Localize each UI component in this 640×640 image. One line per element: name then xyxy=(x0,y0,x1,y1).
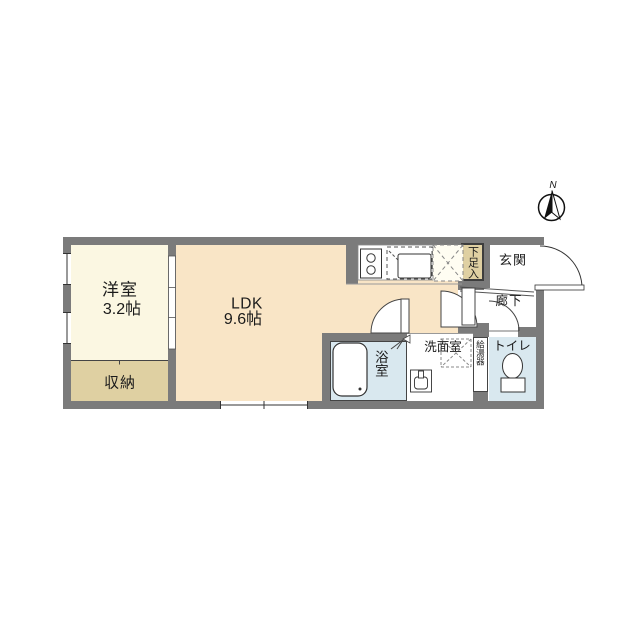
door-arc-washroom xyxy=(371,299,409,333)
window-west-lower xyxy=(63,312,71,344)
room-label-washroom: 洗面室 xyxy=(424,341,462,354)
room-label-closet: 収納 xyxy=(104,376,136,391)
front-door xyxy=(535,245,584,290)
room-size-western: 3.2帖 xyxy=(103,302,141,318)
floor-plan: 洋室 3.2帖 LDK 9.6帖 収納 下足入 玄関 廊下 トイレ 洗面室 浴室… xyxy=(0,0,640,640)
room-label-hallway: 廊下 xyxy=(495,295,522,308)
room-label-shoebox: 下足入 xyxy=(466,246,478,279)
window-ldk-south xyxy=(220,401,308,409)
sliding-door-western-ldk xyxy=(169,256,176,349)
room-size-ldk: 9.6帖 xyxy=(224,312,262,328)
sliding-door-closet xyxy=(71,361,168,365)
compass-icon xyxy=(539,191,565,221)
refrigerator-space-icon xyxy=(433,245,463,281)
folding-door-bathroom xyxy=(391,335,410,349)
door-arc-hallway xyxy=(441,288,477,327)
compass-north-label: N xyxy=(549,181,556,191)
room-label-western: 洋室 xyxy=(102,282,138,299)
stove-icon xyxy=(361,249,382,278)
room-label-ldk: LDK xyxy=(231,296,263,312)
window-west-upper xyxy=(63,253,71,285)
room-label-bathroom: 浴室 xyxy=(371,350,388,377)
room-label-entrance: 玄関 xyxy=(499,254,527,267)
room-label-toilet: トイレ xyxy=(493,340,531,353)
washbasin-icon xyxy=(411,370,432,392)
bathtub-icon xyxy=(333,343,367,396)
plan-symbols xyxy=(0,0,640,640)
toilet-icon xyxy=(501,354,525,393)
room-label-water-heater: 給湯器 xyxy=(476,340,485,366)
